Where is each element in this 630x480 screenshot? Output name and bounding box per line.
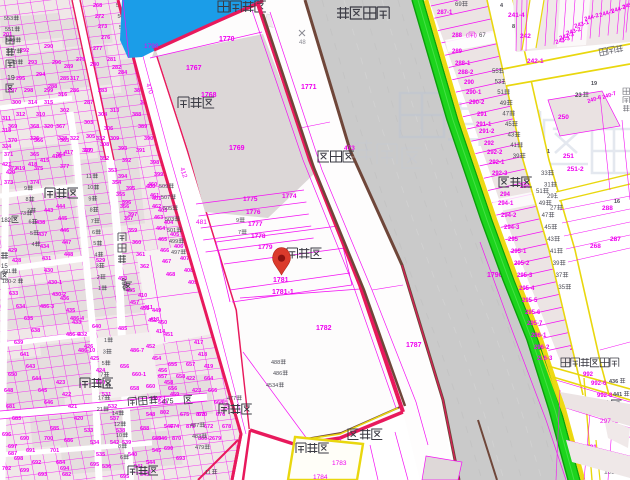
svg-text:443: 443 xyxy=(44,208,53,214)
svg-text:660-1: 660-1 xyxy=(132,372,146,378)
svg-text:8: 8 xyxy=(90,208,93,214)
svg-text:416: 416 xyxy=(52,154,61,160)
svg-text:681: 681 xyxy=(6,404,15,410)
svg-text:1767: 1767 xyxy=(186,65,202,72)
svg-text:399: 399 xyxy=(154,172,163,178)
svg-text:11: 11 xyxy=(205,470,211,476)
svg-text:356: 356 xyxy=(120,204,129,210)
svg-text:451: 451 xyxy=(164,332,173,338)
svg-text:273: 273 xyxy=(98,24,107,30)
svg-text:8: 8 xyxy=(26,197,29,203)
svg-text:452: 452 xyxy=(146,344,155,350)
svg-text:1770: 1770 xyxy=(219,36,235,43)
svg-text:1784: 1784 xyxy=(313,474,328,480)
svg-text:9: 9 xyxy=(88,196,91,202)
svg-text:485: 485 xyxy=(118,326,127,332)
svg-text:43: 43 xyxy=(508,133,515,139)
svg-text:367: 367 xyxy=(56,124,65,130)
svg-text:685: 685 xyxy=(50,426,59,432)
svg-text:429: 429 xyxy=(8,248,17,254)
svg-text:330: 330 xyxy=(84,148,93,154)
svg-text:422: 422 xyxy=(186,376,195,382)
svg-text:300: 300 xyxy=(12,100,21,106)
svg-text:43: 43 xyxy=(547,237,554,243)
svg-text:422: 422 xyxy=(62,392,71,398)
svg-text:284: 284 xyxy=(118,70,128,76)
svg-text:430-1: 430-1 xyxy=(48,280,62,286)
svg-text:296-1: 296-1 xyxy=(531,333,547,339)
svg-text:459: 459 xyxy=(170,392,179,398)
svg-text:374: 374 xyxy=(30,180,40,186)
svg-text:67: 67 xyxy=(479,33,486,39)
svg-text:7: 7 xyxy=(238,230,241,236)
svg-text:1: 1 xyxy=(104,338,107,344)
svg-text:505: 505 xyxy=(163,206,172,212)
svg-text:450: 450 xyxy=(158,320,167,326)
svg-text:317: 317 xyxy=(70,76,79,82)
svg-text:873: 873 xyxy=(196,412,205,418)
svg-text:688: 688 xyxy=(140,426,149,432)
svg-text:23: 23 xyxy=(575,93,582,99)
svg-text:19: 19 xyxy=(7,75,15,82)
svg-text:423: 423 xyxy=(192,388,201,394)
svg-text:51: 51 xyxy=(497,90,504,96)
svg-text:365: 365 xyxy=(30,152,39,158)
svg-text:691: 691 xyxy=(26,448,35,454)
svg-text:315: 315 xyxy=(44,100,53,106)
svg-text:1798: 1798 xyxy=(144,43,159,50)
svg-text:49: 49 xyxy=(500,101,507,107)
svg-text:288: 288 xyxy=(602,205,613,212)
svg-text:457: 457 xyxy=(130,300,139,306)
svg-text:8: 8 xyxy=(512,24,515,30)
svg-text:689: 689 xyxy=(152,436,161,442)
svg-text:468: 468 xyxy=(166,272,175,278)
svg-text:250: 250 xyxy=(558,114,569,121)
svg-text:445: 445 xyxy=(58,216,67,222)
svg-text:431: 431 xyxy=(42,256,51,262)
svg-text:371: 371 xyxy=(4,152,13,158)
svg-text:3: 3 xyxy=(96,264,99,270)
svg-text:288: 288 xyxy=(452,33,463,39)
svg-text:294-2: 294-2 xyxy=(501,213,517,219)
svg-text:1775: 1775 xyxy=(243,196,258,203)
svg-text:992: 992 xyxy=(583,372,594,378)
svg-text:312: 312 xyxy=(16,112,25,118)
svg-text:417: 417 xyxy=(194,340,203,346)
svg-text:870: 870 xyxy=(172,436,181,442)
svg-text:37: 37 xyxy=(556,273,563,279)
svg-text:634: 634 xyxy=(16,304,26,310)
svg-text:242-1: 242-1 xyxy=(527,58,544,65)
svg-text:251: 251 xyxy=(563,153,574,160)
svg-text:464: 464 xyxy=(156,226,166,232)
svg-text:322: 322 xyxy=(70,136,79,142)
svg-text:454: 454 xyxy=(152,356,162,362)
svg-text:458: 458 xyxy=(164,380,173,386)
svg-text:39: 39 xyxy=(553,261,560,267)
svg-text:1771: 1771 xyxy=(301,84,317,91)
svg-text:398: 398 xyxy=(150,160,159,166)
svg-text:536: 536 xyxy=(102,464,111,470)
svg-text:294-3: 294-3 xyxy=(504,225,520,231)
svg-text:690: 690 xyxy=(20,436,29,442)
svg-text:368: 368 xyxy=(30,124,39,130)
svg-text:419: 419 xyxy=(16,166,25,172)
svg-text:286: 286 xyxy=(70,88,79,94)
svg-text:1783: 1783 xyxy=(332,460,347,467)
svg-text:1: 1 xyxy=(98,286,101,292)
svg-text:447: 447 xyxy=(62,240,71,246)
svg-text:360: 360 xyxy=(132,240,141,246)
svg-text:290-2: 290-2 xyxy=(469,100,485,106)
svg-text:304: 304 xyxy=(98,112,108,118)
svg-text:297: 297 xyxy=(600,418,611,425)
svg-text:276: 276 xyxy=(101,35,110,41)
svg-text:359: 359 xyxy=(128,228,137,234)
svg-text:479: 479 xyxy=(195,445,204,451)
svg-text:298: 298 xyxy=(24,88,33,94)
svg-text:305: 305 xyxy=(86,134,95,140)
svg-text:699: 699 xyxy=(20,468,29,474)
svg-text:287: 287 xyxy=(84,100,93,106)
svg-text:373: 373 xyxy=(4,180,13,186)
svg-text:407: 407 xyxy=(180,256,189,262)
svg-text:444: 444 xyxy=(56,204,66,210)
svg-text:428: 428 xyxy=(12,258,21,264)
svg-text:463: 463 xyxy=(154,215,163,221)
svg-text:313: 313 xyxy=(110,108,119,114)
svg-text:(: ( xyxy=(466,33,468,39)
svg-text:294: 294 xyxy=(500,192,511,198)
svg-text:295-5: 295-5 xyxy=(522,298,538,304)
svg-text:1782: 1782 xyxy=(316,325,332,332)
svg-text:292-3: 292-3 xyxy=(492,171,508,177)
svg-text:425: 425 xyxy=(90,356,99,362)
svg-text:291: 291 xyxy=(477,112,488,118)
svg-text:698: 698 xyxy=(14,456,23,462)
svg-text:31: 31 xyxy=(544,183,551,189)
svg-text:1779: 1779 xyxy=(258,244,273,251)
svg-text:437: 437 xyxy=(38,232,47,238)
svg-text:551: 551 xyxy=(5,27,14,33)
svg-text:377: 377 xyxy=(60,164,69,170)
svg-text:388: 388 xyxy=(132,112,141,118)
svg-text:486-7: 486-7 xyxy=(130,348,144,354)
svg-text:53: 53 xyxy=(495,80,502,86)
svg-text:290: 290 xyxy=(44,44,53,50)
svg-text:33: 33 xyxy=(541,171,548,177)
svg-text:638: 638 xyxy=(31,328,40,334)
svg-text:1776: 1776 xyxy=(246,209,261,216)
svg-text:2: 2 xyxy=(97,275,100,281)
svg-text:702: 702 xyxy=(2,466,11,472)
svg-text:655: 655 xyxy=(168,362,177,368)
svg-text:6: 6 xyxy=(92,230,95,236)
svg-text:664: 664 xyxy=(204,376,214,382)
svg-text:503: 503 xyxy=(165,217,174,223)
svg-text:455: 455 xyxy=(126,288,135,294)
svg-text:291-2: 291-2 xyxy=(479,129,495,135)
svg-text:497: 497 xyxy=(171,250,180,256)
svg-text:9: 9 xyxy=(24,186,27,192)
svg-text:295-2: 295-2 xyxy=(514,261,530,267)
svg-text:241-4: 241-4 xyxy=(508,12,525,19)
svg-text:10: 10 xyxy=(116,433,122,439)
svg-text:696: 696 xyxy=(2,432,11,438)
svg-text:548: 548 xyxy=(146,412,155,418)
svg-text:1777: 1777 xyxy=(248,221,263,228)
svg-text:291-1: 291-1 xyxy=(476,122,492,128)
svg-text:456: 456 xyxy=(158,368,167,374)
svg-text:540: 540 xyxy=(128,452,137,458)
svg-text:488: 488 xyxy=(271,360,280,366)
svg-text:639: 639 xyxy=(14,340,23,346)
svg-text:295-4: 295-4 xyxy=(519,286,535,292)
svg-text:544: 544 xyxy=(146,460,156,466)
svg-text:473: 473 xyxy=(344,145,355,152)
svg-text:47: 47 xyxy=(542,213,549,219)
svg-text:509: 509 xyxy=(159,184,168,190)
svg-text:701: 701 xyxy=(50,448,59,454)
svg-text:1: 1 xyxy=(547,149,550,155)
svg-text:35: 35 xyxy=(558,285,565,291)
svg-text:672: 672 xyxy=(204,424,213,430)
svg-text:48: 48 xyxy=(299,40,306,46)
svg-text:420: 420 xyxy=(74,416,83,422)
svg-text:324: 324 xyxy=(2,144,12,150)
svg-text:477: 477 xyxy=(227,396,236,402)
svg-text:1769: 1769 xyxy=(229,145,245,152)
svg-text:483: 483 xyxy=(192,434,201,440)
svg-text:436: 436 xyxy=(60,296,69,302)
svg-text:294-1: 294-1 xyxy=(498,201,514,207)
svg-text:499: 499 xyxy=(169,239,178,245)
svg-text:12: 12 xyxy=(114,422,120,428)
svg-text:421: 421 xyxy=(68,404,77,410)
svg-text:693: 693 xyxy=(176,456,185,462)
svg-text:418: 418 xyxy=(198,352,207,358)
svg-text:690: 690 xyxy=(164,446,173,452)
svg-text:436: 436 xyxy=(609,379,618,385)
svg-text:294: 294 xyxy=(36,72,46,78)
svg-text:314: 314 xyxy=(28,100,38,106)
svg-text:700: 700 xyxy=(44,436,53,442)
svg-text:693: 693 xyxy=(38,472,47,478)
svg-text:992-6: 992-6 xyxy=(591,381,607,387)
svg-text:487: 487 xyxy=(190,423,199,429)
svg-text:417: 417 xyxy=(64,150,73,156)
svg-text:481: 481 xyxy=(196,219,207,226)
svg-text:545: 545 xyxy=(152,448,161,454)
svg-text:292-2: 292-2 xyxy=(487,150,503,156)
svg-text:296: 296 xyxy=(52,60,61,66)
svg-text:288-2: 288-2 xyxy=(458,70,474,76)
svg-text:10: 10 xyxy=(87,185,93,191)
svg-text:643: 643 xyxy=(26,364,35,370)
svg-text:45: 45 xyxy=(544,225,551,231)
svg-text:14: 14 xyxy=(112,411,118,417)
svg-text:268: 268 xyxy=(93,3,102,9)
svg-text:326: 326 xyxy=(30,136,39,142)
svg-text:361: 361 xyxy=(136,252,145,258)
svg-text:4: 4 xyxy=(32,242,35,248)
svg-text:389: 389 xyxy=(138,124,147,130)
svg-text:660: 660 xyxy=(146,384,155,390)
svg-text:311: 311 xyxy=(2,116,11,122)
svg-text:539: 539 xyxy=(122,440,131,446)
svg-text:423: 423 xyxy=(56,380,65,386)
svg-text:430: 430 xyxy=(44,268,53,274)
svg-text:433: 433 xyxy=(72,320,81,326)
svg-text:16: 16 xyxy=(614,199,620,205)
svg-text:415: 415 xyxy=(40,158,49,164)
svg-text:486-3: 486-3 xyxy=(40,304,54,310)
svg-text:69: 69 xyxy=(455,2,462,8)
svg-text:292-1: 292-1 xyxy=(489,160,505,166)
svg-text:29: 29 xyxy=(547,194,554,200)
svg-text:3: 3 xyxy=(103,350,106,356)
svg-text:7: 7 xyxy=(91,219,94,225)
svg-text:21: 21 xyxy=(97,407,103,413)
svg-text:295: 295 xyxy=(16,76,25,82)
svg-text:419: 419 xyxy=(204,364,213,370)
svg-text:288: 288 xyxy=(48,84,57,90)
svg-text:285: 285 xyxy=(60,76,69,82)
svg-text:501: 501 xyxy=(167,228,176,234)
svg-text:272: 272 xyxy=(95,14,104,20)
svg-text:802: 802 xyxy=(160,410,169,416)
svg-text:287: 287 xyxy=(610,236,621,243)
svg-text:633: 633 xyxy=(9,291,18,297)
svg-text:434: 434 xyxy=(40,244,50,250)
svg-text:426: 426 xyxy=(84,344,93,350)
svg-text:674: 674 xyxy=(170,424,180,430)
svg-text:318: 318 xyxy=(2,128,11,134)
svg-text:1781-1: 1781-1 xyxy=(272,289,294,296)
svg-text:242: 242 xyxy=(520,33,531,40)
svg-text:316: 316 xyxy=(58,92,67,98)
svg-text:5: 5 xyxy=(93,241,96,247)
svg-text:7: 7 xyxy=(27,208,30,214)
svg-text:533: 533 xyxy=(84,428,93,434)
svg-text:280: 280 xyxy=(90,62,99,68)
svg-text:675: 675 xyxy=(180,412,189,418)
svg-text:410: 410 xyxy=(138,293,147,299)
svg-text:682: 682 xyxy=(62,472,71,478)
svg-text:6: 6 xyxy=(29,220,32,226)
svg-text:39: 39 xyxy=(513,154,520,160)
svg-text:11: 11 xyxy=(86,174,92,180)
svg-text:73: 73 xyxy=(20,211,26,217)
svg-text:438: 438 xyxy=(36,220,45,226)
svg-text:302: 302 xyxy=(60,108,69,114)
svg-text:362: 362 xyxy=(140,264,149,270)
svg-text:465: 465 xyxy=(158,237,167,243)
svg-text:287-1: 287-1 xyxy=(437,10,453,16)
svg-text:650: 650 xyxy=(8,372,17,378)
svg-text:251-2: 251-2 xyxy=(567,166,584,173)
svg-text:288-1: 288-1 xyxy=(455,61,471,67)
svg-text:180-2: 180-2 xyxy=(2,279,16,285)
svg-text:432: 432 xyxy=(78,332,87,338)
svg-text:296-2: 296-2 xyxy=(534,345,550,351)
svg-text:1781: 1781 xyxy=(273,277,289,284)
svg-text:393: 393 xyxy=(118,146,127,152)
svg-text:1768: 1768 xyxy=(201,92,217,99)
svg-text:391: 391 xyxy=(136,148,145,154)
svg-text:421: 421 xyxy=(2,162,11,168)
svg-text:9: 9 xyxy=(236,218,239,224)
svg-text:295-7: 295-7 xyxy=(527,321,543,327)
svg-text:8: 8 xyxy=(118,444,121,450)
svg-text:289: 289 xyxy=(64,64,73,70)
svg-text:486: 486 xyxy=(273,371,282,377)
svg-text:534: 534 xyxy=(90,440,100,446)
svg-text:49: 49 xyxy=(539,201,546,207)
svg-text:640: 640 xyxy=(92,324,101,330)
svg-text:535: 535 xyxy=(96,452,105,458)
svg-text:435: 435 xyxy=(66,308,75,314)
svg-text:332: 332 xyxy=(96,136,105,142)
svg-text:6: 6 xyxy=(120,455,123,461)
svg-text:19: 19 xyxy=(591,81,597,87)
svg-text:306: 306 xyxy=(104,126,113,132)
svg-text:1787: 1787 xyxy=(406,342,422,349)
svg-text:303: 303 xyxy=(84,120,93,126)
svg-text:355: 355 xyxy=(116,192,125,198)
svg-text:666: 666 xyxy=(208,388,217,394)
svg-text:679: 679 xyxy=(212,436,221,442)
svg-text:644: 644 xyxy=(32,376,42,382)
svg-text:648: 648 xyxy=(4,388,13,394)
svg-text:27: 27 xyxy=(550,206,557,212)
svg-text:289: 289 xyxy=(452,49,463,55)
svg-text:283: 283 xyxy=(98,88,107,94)
svg-text:1774: 1774 xyxy=(282,193,297,200)
svg-text:309: 309 xyxy=(110,136,119,142)
svg-text:295: 295 xyxy=(508,237,519,243)
svg-text:292: 292 xyxy=(484,141,495,147)
svg-text:310: 310 xyxy=(36,112,45,118)
svg-text:295-6: 295-6 xyxy=(525,310,541,316)
svg-text:): ) xyxy=(475,33,477,39)
svg-text:390: 390 xyxy=(144,136,153,142)
svg-text:692: 692 xyxy=(32,460,41,466)
svg-text:293: 293 xyxy=(28,60,37,66)
svg-text:657: 657 xyxy=(186,362,195,368)
svg-text:5: 5 xyxy=(30,231,33,237)
svg-text:295-3: 295-3 xyxy=(517,273,533,279)
svg-text:507: 507 xyxy=(161,195,170,201)
svg-text:4534: 4534 xyxy=(266,383,278,389)
svg-text:697: 697 xyxy=(8,444,17,450)
svg-text:295-1: 295-1 xyxy=(511,249,527,255)
svg-text:182: 182 xyxy=(1,218,12,224)
svg-text:51: 51 xyxy=(536,189,543,195)
svg-text:277: 277 xyxy=(93,46,102,52)
svg-text:683: 683 xyxy=(12,416,21,422)
svg-text:290-1: 290-1 xyxy=(466,90,482,96)
svg-text:641: 641 xyxy=(20,352,29,358)
svg-text:656: 656 xyxy=(120,364,129,370)
svg-text:5: 5 xyxy=(102,361,105,367)
svg-text:45: 45 xyxy=(505,122,512,128)
svg-text:281: 281 xyxy=(107,57,116,63)
svg-text:400: 400 xyxy=(146,184,155,190)
svg-text:395: 395 xyxy=(126,186,135,192)
svg-text:401: 401 xyxy=(152,196,161,202)
